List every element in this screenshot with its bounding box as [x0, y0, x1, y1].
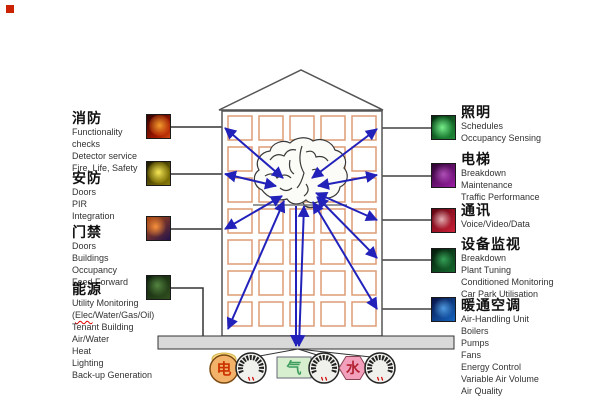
meter-gauge [309, 353, 339, 383]
water-label: 水 [346, 360, 361, 376]
gas-label: 气 [285, 359, 301, 377]
building-window [290, 116, 314, 140]
building-window [259, 271, 283, 295]
building-window [321, 302, 345, 326]
building-base [158, 336, 454, 349]
building-window [352, 147, 376, 171]
connector-lines-right [382, 128, 431, 309]
electricity-label: 电 [216, 360, 231, 378]
building-window [228, 240, 252, 264]
corner-mark [6, 5, 14, 13]
building-window [321, 271, 345, 295]
building-window [228, 178, 252, 202]
building-window [321, 240, 345, 264]
building-window [259, 302, 283, 326]
utility-meters: 电 气 水 [210, 349, 395, 383]
building-window [352, 209, 376, 233]
diagram-canvas: 电 气 水 [0, 0, 600, 400]
building-window [352, 116, 376, 140]
meter-gauge [236, 353, 266, 383]
building-window [228, 116, 252, 140]
electricity-meter-icon: 电 [210, 353, 266, 383]
gas-meter-icon: 气 [277, 353, 339, 383]
building-window [228, 147, 252, 171]
building-window [352, 302, 376, 326]
building-window [352, 178, 376, 202]
smart-building-diagram: 电 气 水 消防FunctionalitychecksDetector serv… [0, 0, 600, 400]
water-meter-icon: 水 [339, 353, 395, 383]
connector-lines [171, 127, 222, 336]
building-window [290, 302, 314, 326]
building-window [321, 116, 345, 140]
building-window [290, 209, 314, 233]
meter-gauge [365, 353, 395, 383]
building-roof [219, 70, 383, 110]
building-window [259, 116, 283, 140]
